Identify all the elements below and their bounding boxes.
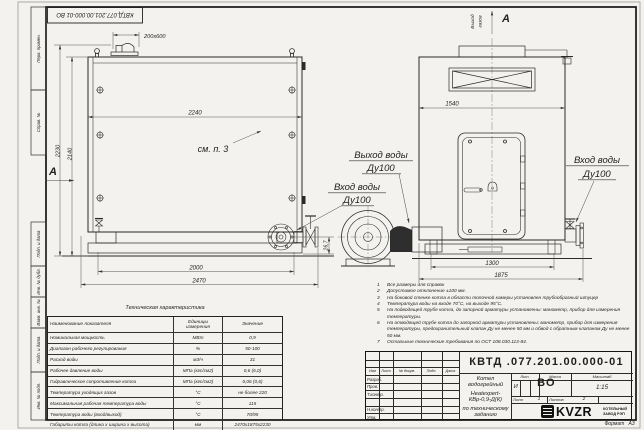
view-letter-a-top: А bbox=[501, 13, 510, 25]
water-outlet-label-1: Выход воды bbox=[354, 150, 407, 161]
kvzr-logo-subtext: КОТЕЛЬНЫЙ ЗАВОД РЭП bbox=[603, 407, 633, 416]
water-inlet-right-label-2: Ду100 bbox=[582, 169, 611, 180]
tb-col-ndoc: № докум. bbox=[393, 369, 421, 373]
tb-row-prov: Пров. bbox=[367, 384, 378, 389]
kvzr-logo-text: KVZR bbox=[556, 405, 592, 419]
dim-26-7: 26,7 bbox=[324, 239, 330, 251]
tb-row-razrab: Разраб. bbox=[367, 377, 382, 382]
tb-col-izm: Изм bbox=[366, 369, 379, 373]
margin-label-invpodl: Инв. № подл. bbox=[36, 383, 41, 410]
water-inlet-port bbox=[268, 216, 318, 250]
tb-document-name: Котел водогрейный Heatexpert-КВр-0,9-Д(К… bbox=[460, 374, 511, 420]
tb-massa-label: Масса bbox=[539, 374, 571, 379]
spec-row: Габариты котла (длина х ширина х высота)… bbox=[48, 419, 282, 430]
tb-list-label: Лист bbox=[513, 397, 523, 402]
tb-col-podp: Подп. bbox=[421, 369, 442, 373]
front-water-inlet bbox=[565, 219, 584, 248]
tb-name-line2: Heatexpert-КВр-0,9-Д(К) bbox=[460, 391, 511, 403]
gas-outlet-label-1: Выход bbox=[470, 14, 476, 29]
top-designation-stamp: КВТД.077.201.00.000-01 ВО bbox=[48, 8, 143, 24]
top-designation-text: КВТД.077.201.00.000-01 ВО bbox=[56, 11, 133, 17]
format-note: Формат А3 bbox=[556, 421, 636, 427]
notes-list: 1Все размеры для справок 2Допустимое отк… bbox=[377, 283, 633, 346]
water-inlet-right-label-1: Вход воды bbox=[574, 155, 620, 166]
tb-lit-value: И bbox=[511, 384, 520, 390]
spec-col-units: Единицы измерения bbox=[174, 317, 223, 332]
spec-table-title: Техническая характеристика bbox=[47, 305, 283, 311]
tb-designation: КВТД .077.201.00.000-01 ВО bbox=[460, 352, 633, 373]
spec-row: Температура воды (вход/выход)°С70/95 bbox=[48, 408, 282, 419]
dim-1540: 1540 bbox=[445, 102, 459, 108]
tb-col-data: Дата bbox=[442, 369, 459, 373]
spec-row: Диапазон рабочего регулирования%50-100 bbox=[48, 343, 282, 354]
water-inlet-label-2: Ду100 bbox=[342, 195, 371, 206]
tb-masshtab-label: Масштаб bbox=[571, 374, 633, 379]
spec-col-value: Значение bbox=[223, 317, 282, 332]
margin-label-podp1: Подп. и дата bbox=[36, 230, 41, 258]
format-value: А3 bbox=[628, 421, 634, 427]
spec-row: Номинальная мощностьМВт0,9 bbox=[48, 332, 282, 343]
tb-row-tkontr: Т.контр. bbox=[367, 392, 384, 397]
water-inlet-label-1: Вход воды bbox=[334, 182, 380, 193]
tb-listov-value: 2 bbox=[576, 397, 592, 402]
tb-name-line3: по техническому заданию bbox=[460, 406, 511, 418]
view-letter-a-left: А bbox=[48, 166, 57, 178]
spec-row: Максимальная рабочая температура воды°С1… bbox=[48, 397, 282, 408]
margin-label-perv: Перв. примен. bbox=[36, 34, 41, 63]
margin-label-podp2: Подп. и дата bbox=[36, 336, 41, 364]
pipe-labels: Выход воды Ду100 Вход воды Ду100 Вход во… bbox=[297, 150, 629, 230]
margin-label-sprav: Справ. № bbox=[36, 112, 41, 132]
kvzr-logo-icon bbox=[541, 405, 554, 418]
boiler-door bbox=[458, 133, 525, 239]
fan-blower bbox=[338, 206, 442, 269]
dim-2230: 2230 bbox=[56, 144, 62, 158]
front-view-dimensions bbox=[419, 11, 583, 282]
dim-1300: 1300 bbox=[485, 261, 499, 267]
spec-col-name: Наименование показателя bbox=[48, 317, 174, 332]
spec-table-header: Наименование показателя Единицы измерени… bbox=[48, 317, 282, 332]
spec-row: Температура уходящих газов°Сне более 220 bbox=[48, 386, 282, 397]
tb-row-nkontr: Н.контр. bbox=[367, 407, 385, 412]
dim-2000: 2000 bbox=[188, 265, 203, 271]
dim-2140: 2140 bbox=[68, 147, 74, 161]
spec-table: Наименование показателя Единицы измерени… bbox=[47, 316, 283, 420]
spec-row: Рабочее давление водыМПа (кгс/см2)0,6 (6… bbox=[48, 365, 282, 376]
tb-name-line1: Котел водогрейный bbox=[460, 376, 511, 388]
front-view bbox=[412, 38, 592, 259]
water-outlet-label-2: Ду100 bbox=[366, 163, 395, 174]
tb-col-list: Лист bbox=[379, 369, 393, 373]
view-arrow-a-left: А bbox=[45, 166, 74, 181]
title-block: Изм Лист № докум. Подп. Дата Разраб. Про… bbox=[365, 351, 632, 420]
tb-row-utv: Утв. bbox=[367, 415, 377, 420]
dim-1875: 1875 bbox=[494, 273, 508, 279]
side-view-dim-texts: 200х600 2240 см. п. 3 2230 2140 2000 247… bbox=[56, 34, 330, 284]
dim-2240: 2240 bbox=[187, 110, 202, 116]
spec-row: Гидравлическое сопротивление котлаМПа (к… bbox=[48, 376, 282, 387]
side-view-dimensions bbox=[54, 32, 334, 288]
dim-duct: 200х600 bbox=[143, 34, 166, 40]
margin-label-vzam: Взам. инв. № bbox=[36, 299, 41, 326]
tb-list-value: 1 bbox=[532, 397, 546, 402]
note-item: 5На подводящей трубе котла, до запорной … bbox=[377, 308, 633, 321]
margin-label-invdubl: Инв. № дубл. bbox=[36, 268, 41, 294]
format-label: Формат bbox=[604, 421, 624, 427]
note-item: 7Остальные технические требования по ОСТ… bbox=[377, 340, 633, 346]
tb-listov-label: Листов bbox=[549, 397, 564, 402]
gas-outlet-label-2: газов bbox=[479, 15, 484, 28]
drawing-sheet: Перв. примен. Справ. № Подп. и дата Инв.… bbox=[0, 0, 644, 430]
note-item: 6На отводящей трубе котла до запорной ар… bbox=[377, 321, 633, 340]
dim-2470: 2470 bbox=[191, 278, 206, 284]
kvzr-logo-subtext-line2: ЗАВОД РЭП bbox=[603, 412, 633, 417]
tb-lit-label: Лит. bbox=[511, 374, 539, 379]
tb-masshtab-value: 1:15 bbox=[571, 384, 633, 391]
see-note-ref: см. п. 3 bbox=[198, 144, 229, 154]
spec-row: Расход водым3/ч31 bbox=[48, 354, 282, 365]
